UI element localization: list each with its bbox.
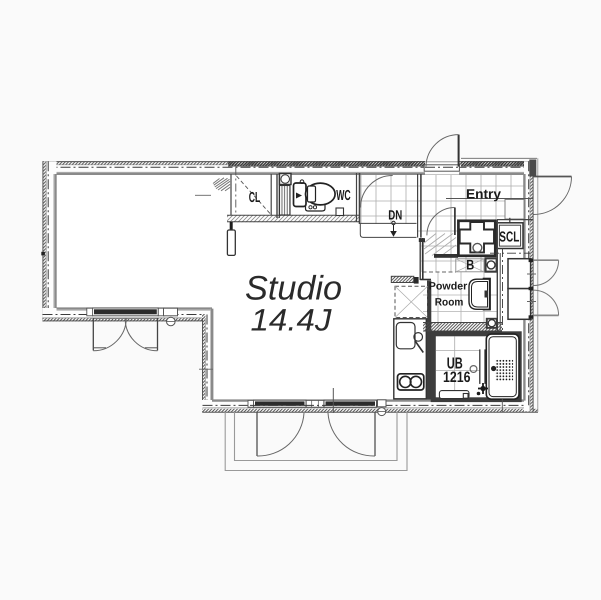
svg-text:Powder: Powder xyxy=(429,280,468,292)
svg-text:Entry: Entry xyxy=(466,187,501,202)
svg-text:B: B xyxy=(466,257,474,273)
svg-text:Room: Room xyxy=(435,296,464,308)
svg-text:1216: 1216 xyxy=(443,369,471,386)
svg-text:SCL: SCL xyxy=(499,230,519,246)
svg-text:CL: CL xyxy=(249,190,261,206)
svg-text:DN: DN xyxy=(388,207,402,222)
svg-text:14.4J: 14.4J xyxy=(251,303,333,338)
svg-text:WC: WC xyxy=(336,188,351,204)
